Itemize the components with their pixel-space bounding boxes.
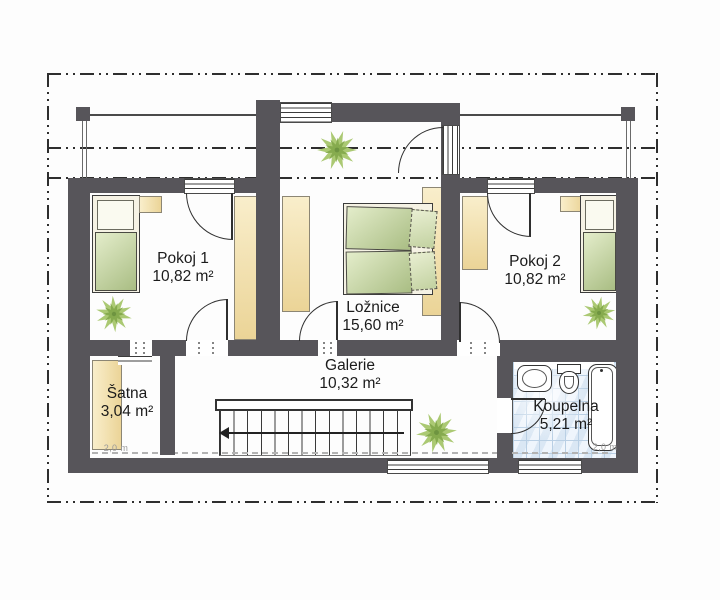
door-leaf <box>459 302 461 342</box>
doorway-koupelna <box>497 398 512 433</box>
room-area: 10,32 m² <box>319 375 380 393</box>
room-name: Pokoj 1 <box>152 250 213 268</box>
bathtub-tap <box>600 369 603 372</box>
window-bottom-galerie <box>387 459 489 474</box>
stair-direction-arrow <box>219 427 229 439</box>
threshold-dots <box>143 342 145 354</box>
door-arc-pokoj1-terrace <box>186 193 233 240</box>
french-door-pokoj2 <box>487 178 535 194</box>
wall-outer-right <box>616 178 638 473</box>
bed-pillow <box>97 200 134 230</box>
doorway-loznice <box>318 340 337 356</box>
bed-duvet <box>345 206 412 251</box>
room-label-satna: Šatna 3,04 m² <box>101 385 154 421</box>
room-name: Koupelna <box>533 398 599 416</box>
room-name: Ložnice <box>342 299 403 317</box>
toilet-seat <box>564 376 574 389</box>
roof-outline-right <box>656 73 658 503</box>
roof-outline-top <box>47 73 658 75</box>
railing-post-right <box>621 107 635 121</box>
door-leaf <box>226 299 228 340</box>
room-label-koupelna: Koupelna 5,21 m² <box>533 398 599 434</box>
window-bottom-koupelna <box>518 459 582 474</box>
door-arc-pokoj2-terrace <box>487 193 531 237</box>
threshold-dots <box>484 342 486 354</box>
plant-icon <box>413 409 460 456</box>
bed-pokoj1 <box>92 195 140 293</box>
wall-north-left <box>68 178 280 193</box>
railing-post-left <box>76 107 90 121</box>
room-name: Pokoj 2 <box>504 253 565 271</box>
dormer-window <box>280 102 332 123</box>
door-leaf <box>336 301 338 340</box>
room-name: Šatna <box>101 385 154 403</box>
door-leaf <box>529 193 531 236</box>
height-marker-satna: 2,0 m <box>104 443 129 453</box>
threshold-dots <box>323 342 325 354</box>
doorway-pokoj1 <box>186 340 228 356</box>
bed-pillow <box>409 251 438 291</box>
threshold-satna <box>118 356 152 365</box>
door-leaf <box>231 193 233 239</box>
door-arc-pokoj2-entry <box>459 302 500 343</box>
balcony-railing-left <box>88 114 258 116</box>
room-label-pokoj2: Pokoj 2 10,82 m² <box>504 253 565 289</box>
roof-outline-left <box>47 73 49 503</box>
terrace-edge-left <box>82 121 83 178</box>
nightstand-pokoj1 <box>139 196 162 213</box>
room-name: Galerie <box>319 357 380 375</box>
double-bed-loznice <box>343 203 433 295</box>
wall-dormer-left <box>256 100 280 356</box>
bed-pokoj2 <box>580 195 619 293</box>
plant-icon <box>580 294 618 332</box>
room-area: 10,82 m² <box>504 271 565 289</box>
room-area: 15,60 m² <box>342 317 403 335</box>
wall-outer-left <box>68 178 90 473</box>
wardrobe-pokoj2 <box>462 196 488 270</box>
room-area: 3,04 m² <box>101 403 154 421</box>
bed-duvet <box>346 250 413 294</box>
height-marker-koupelna: 2,0 m <box>593 442 618 452</box>
threshold-dots <box>212 342 214 354</box>
door-arc-loznice-terrace <box>398 127 443 173</box>
threshold-dots <box>470 342 472 354</box>
terrace-edge-right <box>626 121 627 178</box>
wall-bath-top <box>512 356 638 362</box>
plant-icon <box>93 293 135 335</box>
plant-icon <box>314 127 360 173</box>
roof-outline-bottom <box>47 501 658 503</box>
floor-plan-canvas: Pokoj 1 10,82 m² Ložnice 15,60 m² Pokoj … <box>0 0 720 600</box>
toilet-bowl <box>559 371 579 394</box>
terrace-edge-left-inner <box>86 121 87 178</box>
wardrobe-pokoj1 <box>234 196 258 340</box>
threshold-dots <box>330 342 332 354</box>
threshold-dots <box>198 342 200 354</box>
sink <box>517 365 552 392</box>
room-label-loznice: Ložnice 15,60 m² <box>342 299 403 335</box>
balcony-railing-right <box>458 114 624 116</box>
room-label-galerie: Galerie 10,32 m² <box>319 357 380 393</box>
sink-basin <box>522 369 547 388</box>
french-door-pokoj1 <box>184 178 235 194</box>
bed-duvet <box>583 232 616 291</box>
threshold-dots <box>135 342 137 354</box>
stair-direction-line <box>227 432 404 434</box>
opening-satna <box>130 340 152 356</box>
bed-duvet <box>95 232 137 291</box>
room-area: 5,21 m² <box>533 416 599 434</box>
wall-north-right <box>441 178 638 193</box>
wardrobe-loznice <box>282 196 310 312</box>
room-label-pokoj1: Pokoj 1 10,82 m² <box>152 250 213 286</box>
wall-middle-band <box>68 340 638 356</box>
bed-pillow <box>585 200 614 230</box>
terrace-edge-right-inner <box>630 121 631 178</box>
door-arc-pokoj1-entry <box>186 299 228 341</box>
terrace-door-frame <box>442 125 460 175</box>
wall-satna-right <box>160 350 175 455</box>
bed-pillow <box>408 209 437 249</box>
room-area: 10,82 m² <box>152 268 213 286</box>
